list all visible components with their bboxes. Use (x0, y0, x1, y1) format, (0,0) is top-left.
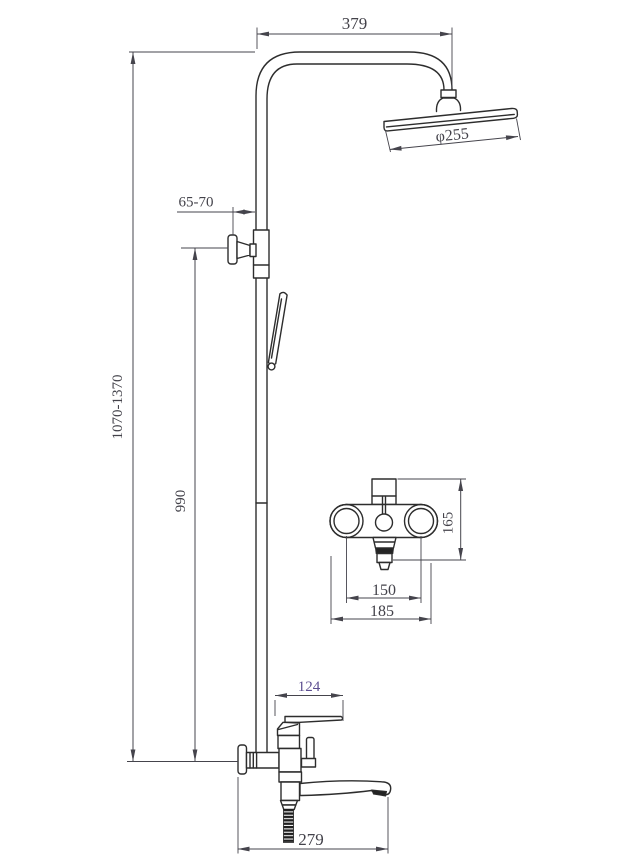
spout-tip-lip (372, 790, 387, 796)
dim-label-bracket-offset: 65-70 (179, 195, 214, 211)
mixer-center-knob (376, 514, 393, 531)
dim-label-handle-length: 124 (298, 679, 321, 695)
shower-dimension-drawing: 379 φ255 65-70 1070-1370 990 165 150 185… (0, 0, 622, 868)
dim-arrow (440, 32, 452, 37)
dim-arrow (331, 693, 343, 698)
spout-connector-cylinder (247, 753, 280, 769)
mixer-aerator-tip (379, 563, 390, 570)
hand-shower-wand (268, 292, 287, 369)
dim-arrow (243, 210, 255, 215)
dim-arrow (238, 847, 250, 852)
spout-main-block (279, 749, 301, 773)
mixer-outlet-dark-band (376, 548, 394, 554)
wand-hook (268, 363, 275, 370)
spout-hex-nut-bottom (282, 805, 296, 810)
diverter-foot (302, 759, 316, 768)
dim-arrow (419, 617, 431, 622)
dim-arrow (257, 32, 269, 37)
shower-arm-outer-line (256, 52, 452, 231)
head-connector-collar (441, 90, 456, 98)
mixer-aerator (377, 554, 392, 563)
spout-lower-body (281, 782, 300, 801)
dim-arrow (193, 248, 198, 260)
dim-label-total-height: 1070-1370 (110, 375, 126, 440)
dim-label-mixer-width: 185 (370, 603, 394, 620)
spout-sub-block (279, 772, 302, 782)
dim-label-mixer-hole-spacing: 150 (372, 582, 396, 599)
shower-column (254, 52, 453, 752)
dim-arrow (331, 617, 343, 622)
dim-label-spout-reach: 279 (298, 830, 324, 849)
head-connector-flare (436, 98, 460, 112)
dim-arrow (458, 479, 463, 491)
wall-bracket (228, 235, 256, 264)
spout-lever-handle (285, 717, 343, 723)
diverter-stem (307, 738, 315, 760)
spout-threaded-rod (284, 810, 294, 843)
spout-mid-body (278, 736, 300, 749)
technical-drawing-canvas: 379 φ255 65-70 1070-1370 990 165 150 185… (0, 0, 622, 868)
overhead-shower-head (384, 90, 517, 131)
bracket-cone (237, 242, 250, 259)
dimension-lines (127, 28, 521, 854)
dim-label-mixer-height: 165 (441, 512, 457, 535)
dim-arrow (275, 693, 287, 698)
bracket-flange (228, 235, 237, 264)
mixer-outlet-cone (373, 538, 396, 549)
bracket-collar (250, 244, 256, 257)
dim-label-arm-width: 379 (342, 14, 368, 33)
shower-arm-inner-line (267, 64, 444, 231)
dim-arrow (131, 750, 136, 762)
dim-arrow (131, 52, 136, 64)
ext-phi255-left (386, 131, 391, 153)
dim-label-head-diameter: φ255 (435, 125, 470, 145)
dim-label-riser-height: 990 (173, 490, 189, 513)
dim-arrow (193, 750, 198, 762)
mixer-top-connector (372, 479, 396, 505)
dim-arrow (409, 596, 421, 601)
spout-wall-flange (238, 745, 247, 774)
dimension-arrowheads (131, 32, 519, 852)
dim-arrow (458, 548, 463, 560)
wand-body (268, 292, 287, 365)
bath-spout-assembly (238, 717, 391, 843)
dim-arrow (376, 847, 388, 852)
dim-arrow (347, 596, 359, 601)
